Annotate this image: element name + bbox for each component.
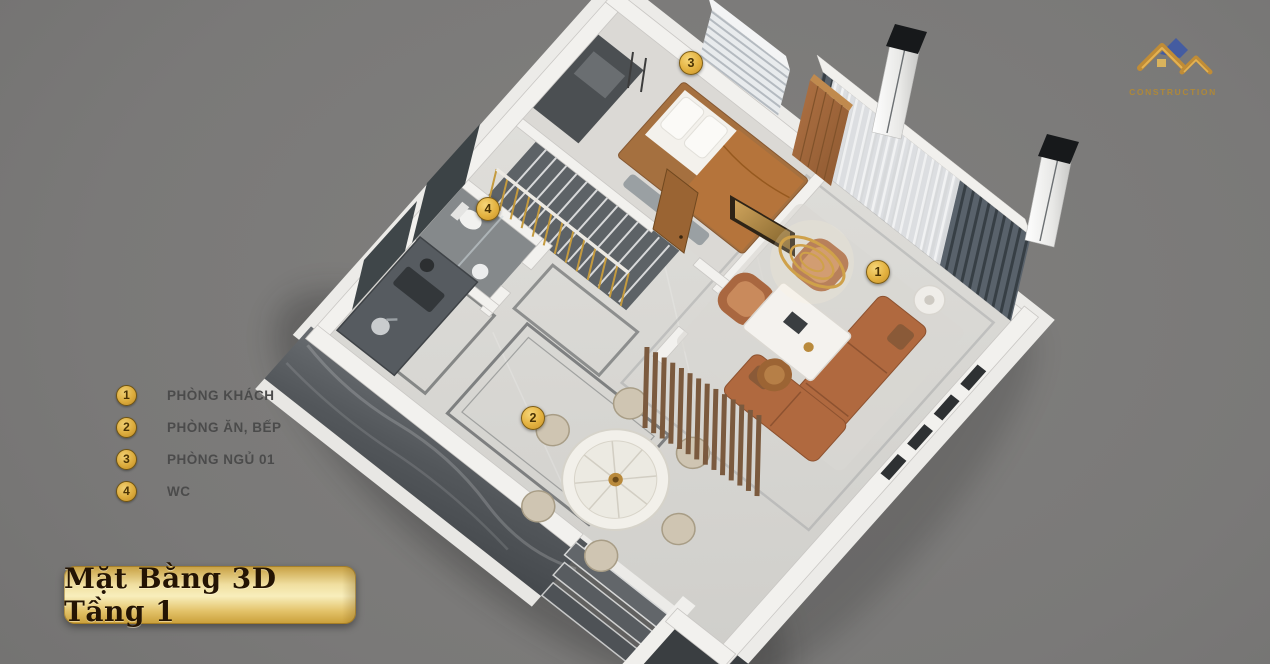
page: 1 2 3 4 1 PHÒNG KHÁCH 2 PHÒNG ĂN, BẾP 3 … xyxy=(0,0,1270,664)
logo-roofs-icon xyxy=(1126,26,1220,80)
legend-badge-3: 3 xyxy=(116,449,137,470)
legend-item-phong-ngu: 3 PHÒNG NGỦ 01 xyxy=(116,449,282,470)
facade-column-2 xyxy=(1025,134,1079,247)
marker-bedroom: 3 xyxy=(679,51,703,75)
marker-living-room: 1 xyxy=(866,260,890,284)
legend-badge-4: 4 xyxy=(116,481,137,502)
legend-item-wc: 4 WC xyxy=(116,481,282,502)
construction-logo: CONSTRUCTION xyxy=(1126,26,1220,102)
marker-wc: 4 xyxy=(476,197,500,221)
legend-label-2: PHÒNG ĂN, BẾP xyxy=(167,420,282,435)
page-title: Mặt Bằng 3D Tầng 1 xyxy=(64,562,356,628)
marker-dining-kitchen: 2 xyxy=(521,406,545,430)
legend: 1 PHÒNG KHÁCH 2 PHÒNG ĂN, BẾP 3 PHÒNG NG… xyxy=(116,385,282,513)
title-banner: Mặt Bằng 3D Tầng 1 xyxy=(64,566,356,624)
logo-text: CONSTRUCTION xyxy=(1126,87,1220,97)
legend-label-3: PHÒNG NGỦ 01 xyxy=(167,452,275,467)
facade-column-1 xyxy=(872,24,927,139)
legend-label-4: WC xyxy=(167,484,191,499)
legend-item-phong-khach: 1 PHÒNG KHÁCH xyxy=(116,385,282,406)
floor-plane xyxy=(249,0,1063,664)
legend-badge-1: 1 xyxy=(116,385,137,406)
legend-item-phong-an-bep: 2 PHÒNG ĂN, BẾP xyxy=(116,417,282,438)
legend-badge-2: 2 xyxy=(116,417,137,438)
legend-label-1: PHÒNG KHÁCH xyxy=(167,388,275,403)
chandelier xyxy=(770,220,854,304)
